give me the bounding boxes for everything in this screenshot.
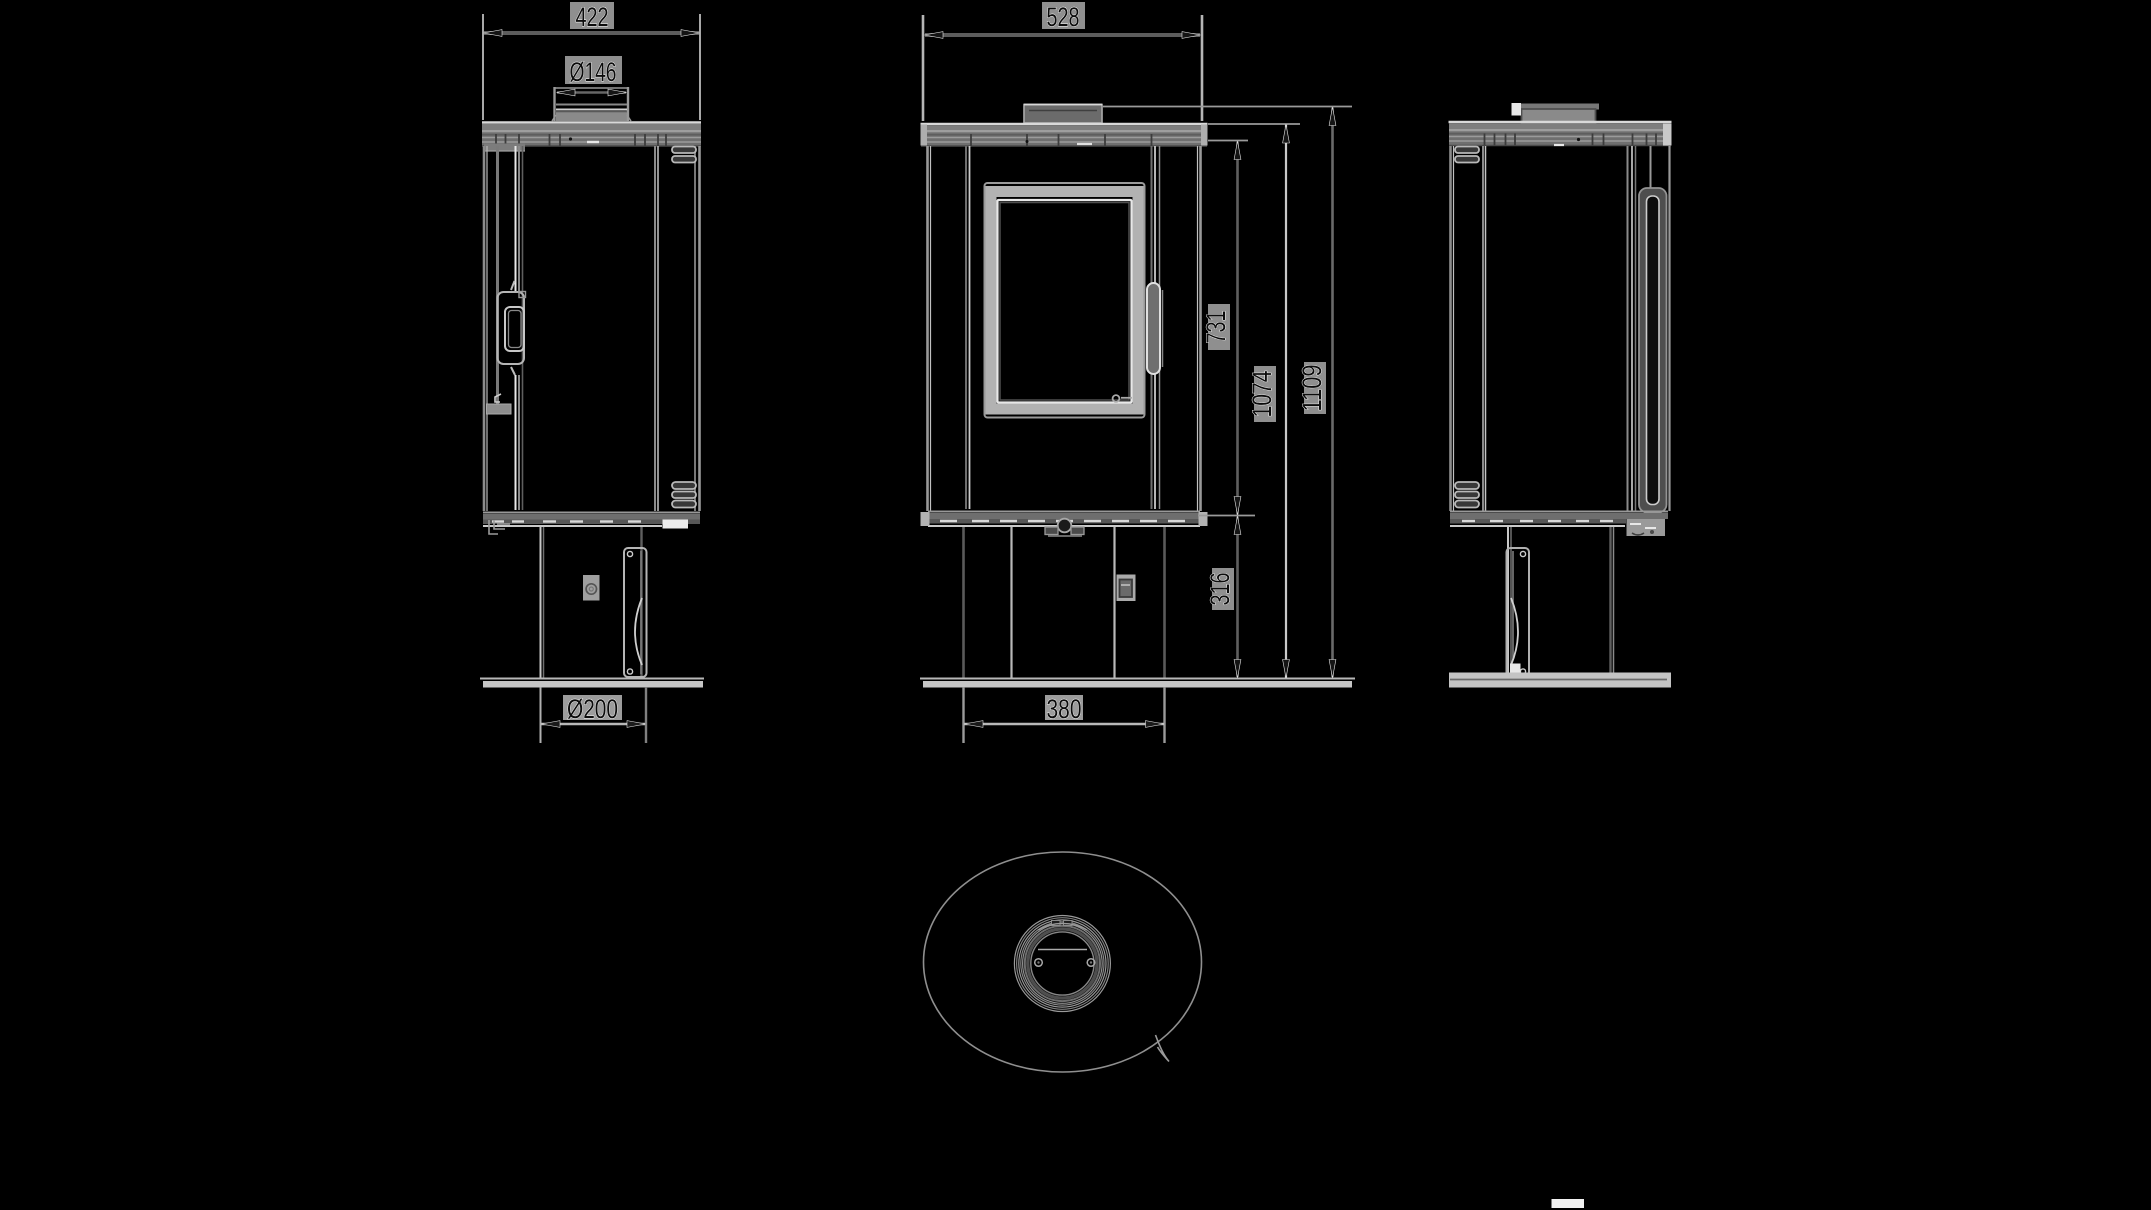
svg-text:1109: 1109 bbox=[1297, 365, 1327, 412]
svg-text:1074: 1074 bbox=[1247, 371, 1277, 418]
svg-text:316: 316 bbox=[1205, 573, 1235, 606]
svg-text:528: 528 bbox=[1047, 2, 1080, 32]
svg-text:731: 731 bbox=[1201, 311, 1231, 344]
svg-text:Ø146: Ø146 bbox=[570, 57, 617, 87]
svg-text:Ø200: Ø200 bbox=[567, 694, 618, 724]
svg-text:380: 380 bbox=[1047, 694, 1082, 724]
svg-text:422: 422 bbox=[576, 2, 609, 32]
